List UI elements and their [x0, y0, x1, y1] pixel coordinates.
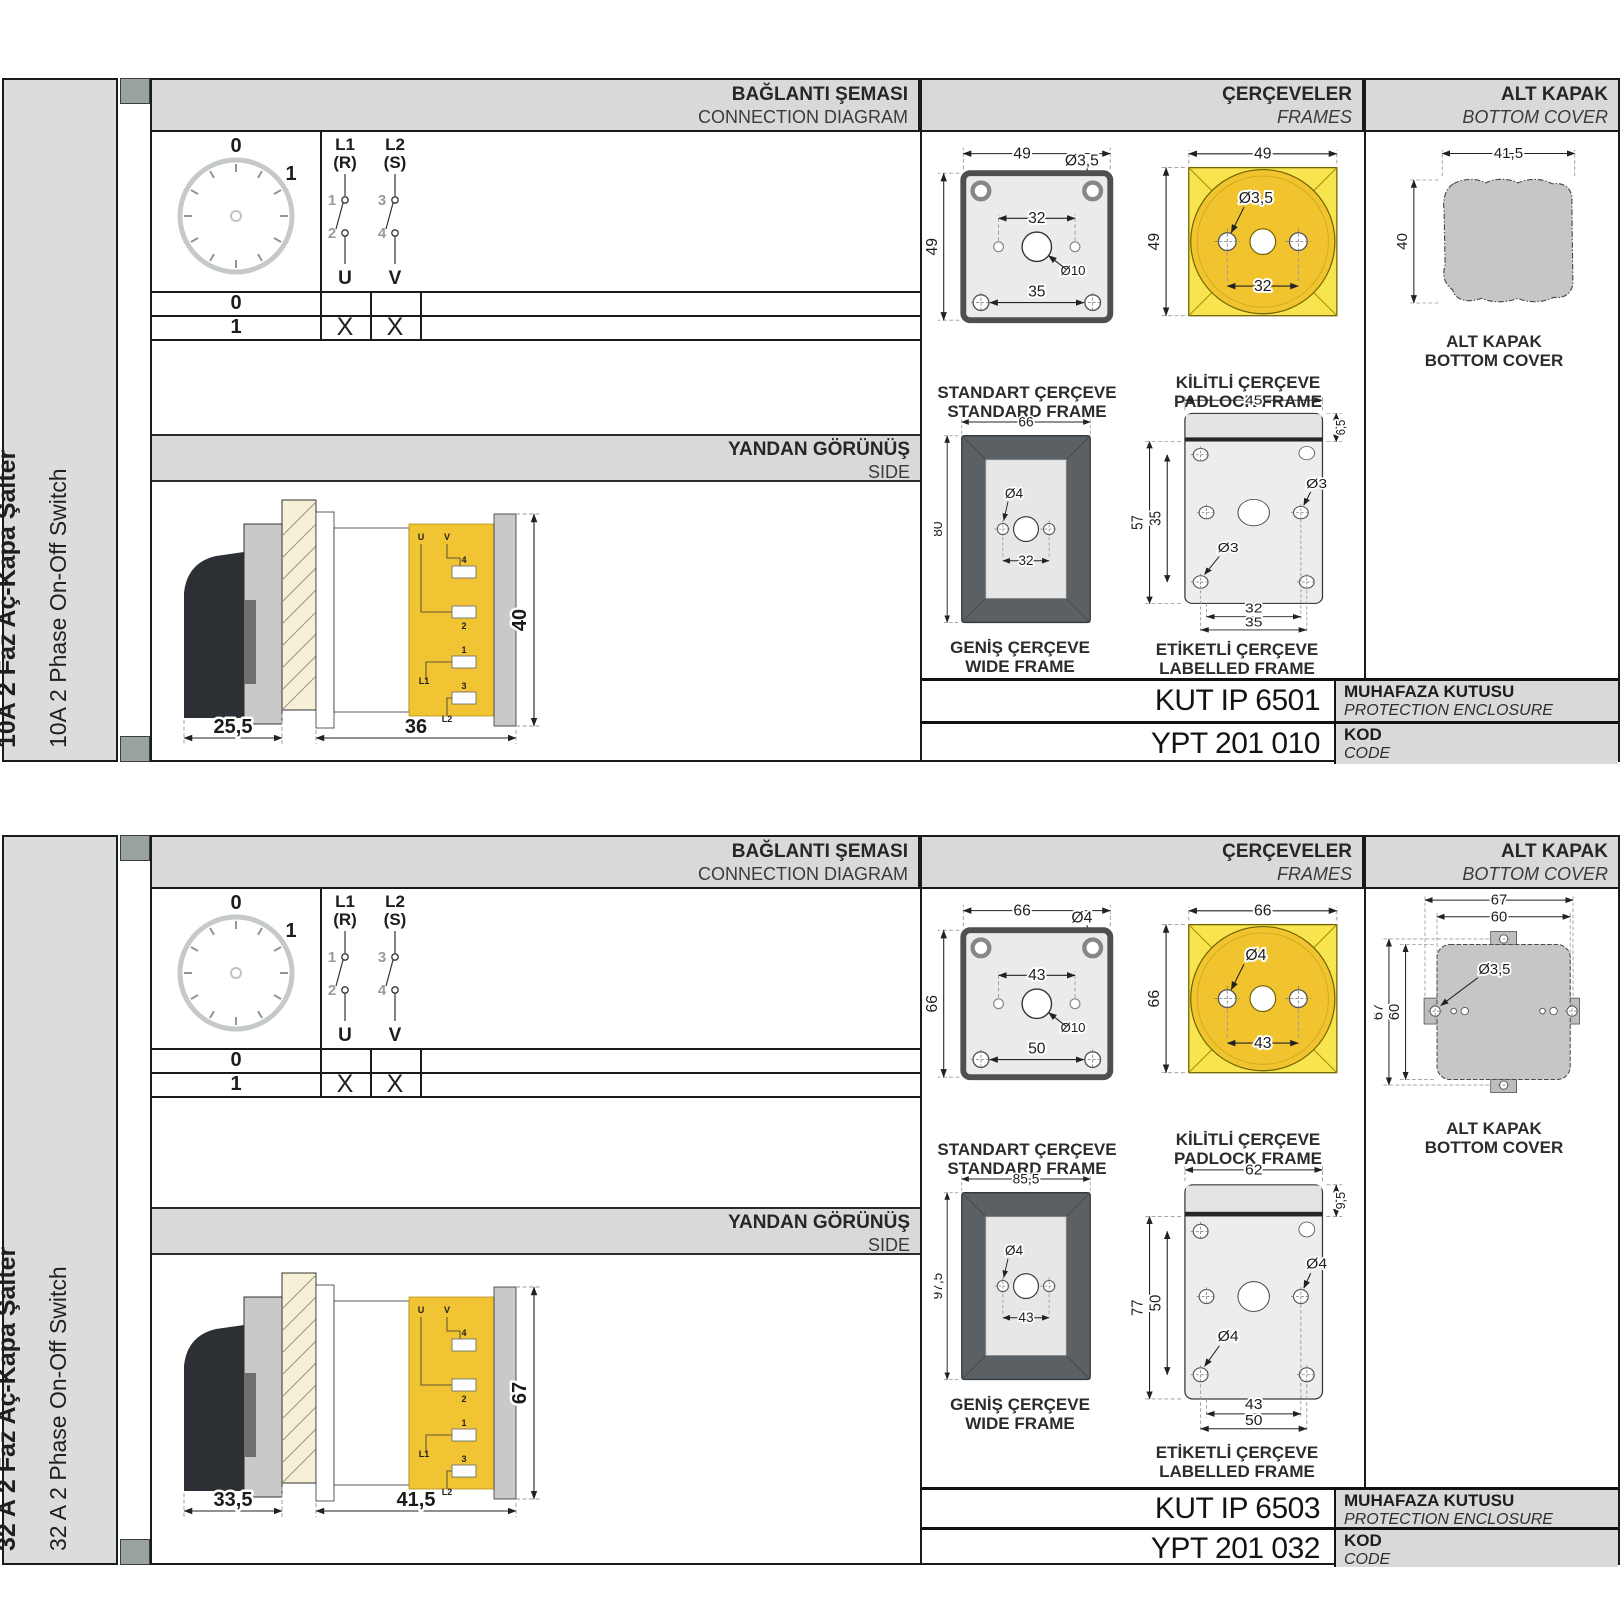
side-view-drawing: U V 4 2 1 3 L1 L2 25,5: [164, 488, 594, 753]
header-cover: ALT KAPAK BOTTOM COVER: [1364, 837, 1618, 887]
svg-text:L2: L2: [442, 1487, 453, 1497]
svg-text:U: U: [418, 1305, 425, 1315]
labelled-dim-width: 62: [1245, 1162, 1262, 1179]
svg-text:3: 3: [461, 1454, 466, 1464]
enclosure-label: MUHAFAZA KUTUSU PROTECTION ENCLOSURE: [1334, 681, 1618, 721]
spacer-square-bottom: [120, 1539, 150, 1565]
standard-dim-corner-hole: Ø4: [1071, 909, 1092, 926]
order-code-row: YPT 201 032 KOD CODE: [920, 1527, 1618, 1567]
svg-text:L1: L1: [419, 676, 430, 686]
labelled-dim-span1: 43: [1245, 1397, 1262, 1414]
terminal-block: U V 4 2 1 3 L1 L2: [409, 1297, 494, 1497]
svg-text:L1: L1: [419, 1449, 430, 1459]
switch-row-1: 1: [152, 1072, 320, 1096]
svg-text:3: 3: [461, 681, 466, 691]
dial-center: [231, 211, 241, 221]
contact-diagram: L1 (R) L2 (S) U 1 2 V 3 4: [320, 134, 920, 291]
terminal-block: U V 4 2 1 3 L1 L2: [409, 524, 494, 724]
standard-dim-height: 66: [924, 995, 941, 1013]
contact-1: 1: [328, 949, 336, 966]
order-code: YPT 201 010: [920, 724, 1334, 764]
header-connection-tr: BAĞLANTI ŞEMASI: [152, 840, 908, 863]
padlock-dim-span: 43: [1254, 1035, 1272, 1052]
standard-dim-center-hole: Ø10: [1061, 263, 1086, 278]
cover-dim-h1: 67: [1374, 1004, 1386, 1020]
table-divider: [420, 291, 422, 339]
contact-2: 2: [328, 982, 336, 999]
switch-handle: [184, 552, 244, 718]
cover-outline: [1444, 179, 1573, 302]
labelled-frame-drawing: 62 9,5 77 50: [1124, 1155, 1350, 1439]
contact-closed-v: X: [370, 1072, 420, 1096]
header-frames-tr: ÇERÇEVELER: [920, 840, 1352, 863]
switch-row-1: 1: [152, 315, 320, 339]
header-connection: BAĞLANTI ŞEMASI CONNECTION DIAGRAM: [152, 837, 920, 887]
standard-frame-drawing: 66 Ø4 66 43 Ø10 50: [924, 893, 1130, 1138]
dial-position-0: 0: [230, 135, 241, 157]
pole1-phase: (R): [333, 153, 357, 172]
contact-3: 3: [378, 192, 386, 209]
terminal-v: V: [389, 1025, 402, 1046]
padlock-dim-width: 49: [1254, 146, 1272, 163]
order-code-label: KOD CODE: [1334, 724, 1618, 764]
pole2-label: L2: [385, 135, 405, 154]
spacer-square-bottom: [120, 736, 150, 762]
labelled-dim-span2: 35: [1245, 616, 1262, 631]
header-connection-en: CONNECTION DIAGRAM: [152, 106, 908, 128]
side-view-header-tr: YANDAN GÖRÜNÜŞ: [152, 438, 910, 461]
header-frames-en: FRAMES: [920, 106, 1352, 128]
datasheet-panel: BAĞLANTI ŞEMASI CONNECTION DIAGRAM ÇERÇE…: [150, 835, 1620, 1565]
cover-dim-h2: 60: [1387, 1004, 1403, 1020]
header-frames-en: FRAMES: [920, 863, 1352, 885]
labelled-dim-inner: 35: [1147, 511, 1164, 526]
enclosure-row: KUT IP 6501 MUHAFAZA KUTUSU PROTECTION E…: [920, 678, 1618, 721]
standard-dim-span: 43: [1028, 967, 1046, 984]
standard-dim-span2: 50: [1028, 1041, 1046, 1058]
labelled-dim-width: 45: [1245, 393, 1262, 408]
svg-text:L2: L2: [442, 714, 453, 724]
standard-dim-span2: 35: [1028, 284, 1046, 301]
header-cover-en: BOTTOM COVER: [1364, 106, 1608, 128]
svg-text:1: 1: [461, 645, 466, 655]
side-view-header: YANDAN GÖRÜNÜŞ SIDE: [152, 434, 920, 482]
header-frames: ÇERÇEVELER FRAMES: [920, 837, 1364, 887]
svg-text:2: 2: [461, 621, 466, 631]
padlock-dim-width: 66: [1254, 903, 1272, 920]
codes-block: KUT IP 6501 MUHAFAZA KUTUSU PROTECTION E…: [920, 678, 1618, 764]
contact-3: 3: [378, 949, 386, 966]
labelled-dim-hole-mid: Ø4: [1306, 1256, 1327, 1273]
dial-position-1: 1: [285, 163, 296, 185]
product-sidebar: 32 A 2 Faz Aç-Kapa Şalter 32 A 2 Phase O…: [2, 835, 118, 1565]
contact-closed-u: X: [320, 315, 370, 339]
contact-4: 4: [378, 982, 387, 999]
wide-dim-span: 32: [1018, 553, 1033, 568]
wide-dim-span: 43: [1018, 1310, 1034, 1325]
header-cover-tr: ALT KAPAK: [1364, 83, 1608, 106]
side-view-header-en: SIDE: [152, 461, 910, 483]
side-view-header-tr: YANDAN GÖRÜNÜŞ: [152, 1211, 910, 1234]
catalog-page: { "colors": { "panel_gray": "#d9d9d9", "…: [0, 0, 1623, 1623]
wide-dim-hole: Ø4: [1005, 1243, 1024, 1258]
switch-body: [334, 1301, 409, 1485]
spacer-column: [120, 835, 150, 1565]
product-title-turkish: 10A 2 Faz Aç-Kapa Şalter: [0, 450, 22, 748]
labelled-dim-inner: 50: [1147, 1295, 1164, 1312]
labelled-frame-caption: ETİKETLİ ÇERÇEVELABELLED FRAME: [1114, 1443, 1360, 1481]
cover-dim-hole: Ø3,5: [1478, 962, 1510, 978]
wide-frame-drawing: 85,5 97,5 Ø4 43: [934, 1167, 1106, 1394]
labelled-dim-hole-mid: Ø3: [1306, 477, 1327, 492]
section-header: BAĞLANTI ŞEMASI CONNECTION DIAGRAM ÇERÇE…: [152, 80, 1618, 132]
wide-dim-width: 66: [1018, 414, 1034, 429]
product-section: 32 A 2 Faz Aç-Kapa Şalter 32 A 2 Phase O…: [0, 835, 1623, 1565]
svg-text:U: U: [418, 532, 425, 542]
header-frames: ÇERÇEVELER FRAMES: [920, 80, 1364, 130]
contact-diagram: L1 (R) L2 (S) U 1 2 V 3 4: [320, 891, 920, 1048]
svg-text:V: V: [444, 1305, 450, 1315]
side-dim-front: 33,5: [214, 1489, 253, 1511]
labelled-frame-drawing: 45 6,5 57 35: [1124, 387, 1350, 639]
table-divider: [420, 1048, 422, 1096]
terminal-v: V: [389, 268, 402, 289]
codes-block: KUT IP 6503 MUHAFAZA KUTUSU PROTECTION E…: [920, 1487, 1618, 1567]
labelled-dim-height: 77: [1129, 1299, 1146, 1316]
padlock-dim-height: 49: [1146, 233, 1163, 251]
bottom-cover-caption: ALT KAPAKBOTTOM COVER: [1366, 332, 1622, 370]
spacer-plate: [316, 512, 334, 728]
side-view-header-en: SIDE: [152, 1234, 910, 1256]
contact-closed-u: X: [320, 1072, 370, 1096]
panel-hatched: [282, 500, 316, 710]
table-line: [152, 339, 920, 341]
spacer-column: [120, 78, 150, 762]
padlock-dim-height: 66: [1146, 990, 1163, 1008]
terminal-u: U: [338, 1025, 352, 1046]
labelled-dim-span2: 50: [1245, 1412, 1262, 1429]
standard-dim-width: 66: [1013, 903, 1031, 920]
pole1-label: L1: [335, 892, 355, 911]
svg-text:4: 4: [461, 555, 466, 565]
dial-position-1: 1: [285, 920, 296, 942]
pole2-phase: (S): [384, 910, 407, 929]
rotary-dial-diagram: 0 1: [158, 891, 318, 1046]
product-title-english: 10A 2 Phase On-Off Switch: [45, 468, 72, 748]
switch-handle: [184, 1325, 244, 1491]
dial-position-0: 0: [230, 892, 241, 914]
wide-dim-width: 85,5: [1013, 1171, 1040, 1186]
standard-dim-span: 32: [1028, 210, 1045, 227]
order-code: YPT 201 032: [920, 1530, 1334, 1567]
header-cover-en: BOTTOM COVER: [1364, 863, 1608, 885]
cover-dim-w1: 67: [1491, 893, 1507, 909]
contact-1: 1: [328, 192, 336, 209]
header-frames-tr: ÇERÇEVELER: [920, 83, 1352, 106]
pole1-label: L1: [335, 135, 355, 154]
padlock-dim-hole: Ø4: [1245, 947, 1266, 964]
column-rule-2: [1364, 837, 1366, 1487]
svg-text:2: 2: [461, 1394, 466, 1404]
spacer-square-top: [120, 78, 150, 104]
wide-dim-height: 97,5: [934, 1272, 945, 1299]
datasheet-panel: BAĞLANTI ŞEMASI CONNECTION DIAGRAM ÇERÇE…: [150, 78, 1620, 762]
terminal-u: U: [338, 268, 352, 289]
labelled-frame-caption: ETİKETLİ ÇERÇEVELABELLED FRAME: [1114, 640, 1360, 678]
dial-center: [231, 968, 241, 978]
spacer-square-top: [120, 835, 150, 861]
padlock-dim-hole: Ø3,5: [1239, 190, 1273, 207]
labelled-dim-top: 9,5: [1333, 1192, 1348, 1209]
product-section: 10A 2 Faz Aç-Kapa Şalter 10A 2 Phase On-…: [0, 78, 1623, 762]
table-divider: [320, 889, 322, 1096]
header-connection-tr: BAĞLANTI ŞEMASI: [152, 83, 908, 106]
bottom-cover-drawing: 67 60 67 60 Ø3,5: [1374, 889, 1623, 1111]
table-divider: [320, 132, 322, 339]
spacer-plate: [316, 1285, 334, 1501]
bottom-cover-caption: ALT KAPAKBOTTOM COVER: [1366, 1119, 1622, 1157]
wide-frame-caption: GENİŞ ÇERÇEVEWIDE FRAME: [922, 1395, 1118, 1433]
wide-frame-caption: GENİŞ ÇERÇEVEWIDE FRAME: [922, 638, 1118, 676]
contact-closed-v: X: [370, 315, 420, 339]
enclosure-code: KUT IP 6501: [920, 681, 1334, 721]
header-connection: BAĞLANTI ŞEMASI CONNECTION DIAGRAM: [152, 80, 920, 130]
labelled-dim-hole-bot: Ø4: [1218, 1329, 1239, 1346]
switch-row-0: 0: [152, 291, 320, 315]
standard-frame-drawing: 49 Ø3,5 49 32 Ø10 35: [924, 136, 1130, 381]
switch-row-0: 0: [152, 1048, 320, 1072]
enclosure-row: KUT IP 6503 MUHAFAZA KUTUSU PROTECTION E…: [920, 1487, 1618, 1527]
bottom-cover-drawing: 41,5 40: [1376, 140, 1622, 325]
header-cover-tr: ALT KAPAK: [1364, 840, 1608, 863]
side-dim-depth: 36: [405, 716, 427, 738]
standard-dim-corner-hole: Ø3,5: [1065, 152, 1099, 169]
pole2-label: L2: [385, 892, 405, 911]
header-cover: ALT KAPAK BOTTOM COVER: [1364, 80, 1618, 130]
product-title-english: 32 A 2 Phase On-Off Switch: [45, 1266, 72, 1551]
standard-dim-height: 49: [924, 238, 941, 255]
svg-text:1: 1: [461, 1418, 466, 1428]
padlock-frame-drawing: 66 66 Ø4 43: [1142, 895, 1354, 1127]
contact-2: 2: [328, 225, 336, 242]
side-dim-depth: 41,5: [397, 1489, 436, 1511]
order-code-row: YPT 201 010 KOD CODE: [920, 721, 1618, 764]
labelled-dim-span1: 32: [1245, 602, 1262, 617]
table-line: [152, 1096, 920, 1098]
wide-frame-drawing: 66 80 Ø4 32: [934, 410, 1106, 637]
product-title-turkish: 32 A 2 Faz Aç-Kapa Şalter: [0, 1247, 22, 1551]
side-view-header: YANDAN GÖRÜNÜŞ SIDE: [152, 1207, 920, 1255]
labelled-dim-height: 57: [1130, 515, 1147, 530]
padlock-dim-span: 32: [1254, 278, 1272, 295]
contact-4: 4: [378, 225, 387, 242]
cover-dim-width: 41,5: [1494, 145, 1523, 162]
side-dim-front: 25,5: [214, 716, 253, 738]
svg-text:4: 4: [461, 1328, 466, 1338]
side-view-drawing: U V 4 2 1 3 L1 L2 33,5: [164, 1261, 594, 1526]
column-rule-2: [1364, 80, 1366, 678]
wide-dim-hole: Ø4: [1005, 486, 1024, 501]
product-sidebar: 10A 2 Faz Aç-Kapa Şalter 10A 2 Phase On-…: [2, 78, 118, 762]
side-dim-height: 40: [509, 609, 531, 631]
section-header: BAĞLANTI ŞEMASI CONNECTION DIAGRAM ÇERÇE…: [152, 837, 1618, 889]
wide-dim-height: 80: [934, 521, 945, 537]
enclosure-label: MUHAFAZA KUTUSU PROTECTION ENCLOSURE: [1334, 1490, 1618, 1527]
cover-dim-height: 40: [1394, 233, 1411, 250]
enclosure-code: KUT IP 6503: [920, 1490, 1334, 1527]
pole2-phase: (S): [384, 153, 407, 172]
order-code-label: KOD CODE: [1334, 1530, 1618, 1567]
rotary-dial-diagram: 0 1: [158, 134, 318, 289]
standard-dim-center-hole: Ø10: [1061, 1020, 1086, 1035]
side-dim-height: 67: [509, 1382, 531, 1404]
labelled-dim-hole-bot: Ø3: [1218, 541, 1239, 556]
pole1-phase: (R): [333, 910, 357, 929]
cover-dim-w2: 60: [1491, 909, 1507, 925]
standard-dim-width: 49: [1013, 146, 1030, 163]
switch-body: [334, 528, 409, 712]
svg-text:V: V: [444, 532, 450, 542]
labelled-dim-top: 6,5: [1333, 420, 1348, 436]
column-rule-1: [920, 837, 922, 1563]
padlock-frame-drawing: 49 49 Ø3,5 32: [1142, 138, 1354, 370]
header-connection-en: CONNECTION DIAGRAM: [152, 863, 908, 885]
panel-hatched: [282, 1273, 316, 1483]
